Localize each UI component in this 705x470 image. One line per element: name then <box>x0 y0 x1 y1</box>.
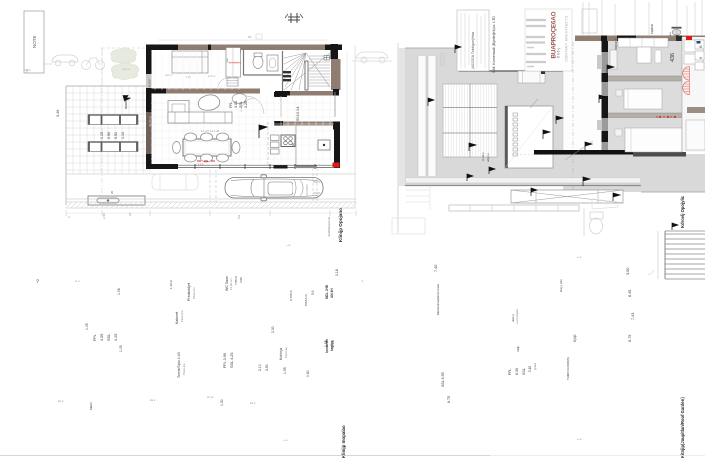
svg-text:PISTA m: PISTA m <box>304 294 308 306</box>
svg-text:xxxx m: xxxx m <box>208 75 215 78</box>
svg-text:~ u: ~ u <box>283 438 288 442</box>
svg-text:THIRD FLOOR(S): THIRD FLOOR(S) <box>566 357 570 380</box>
svg-text:24: 24 <box>128 212 132 216</box>
svg-text:grava: grava <box>533 363 537 370</box>
svg-text:3.9: 3.9 <box>311 290 315 295</box>
svg-text:7.05 D: 7.05 D <box>234 275 238 285</box>
svg-text:6.45: 6.45 <box>628 290 632 297</box>
svg-text:40.06 m: 40.06 m <box>148 116 152 127</box>
svg-text:xxxx m: xxxx m <box>165 74 172 77</box>
svg-text:3.90: 3.90 <box>265 364 269 371</box>
svg-text:KUB.M: KUB.M <box>149 79 152 87</box>
svg-text:xx x: xx x <box>150 398 156 402</box>
svg-text:(ACGGA Tololigunjhfaa: (ACGGA Tololigunjhfaa <box>471 32 475 69</box>
svg-text:1.05: 1.05 <box>85 323 89 330</box>
svg-text:3.05: 3.05 <box>234 101 238 108</box>
svg-text:W: W <box>110 191 114 194</box>
svg-text:Pisos are: Pisos are <box>180 310 184 322</box>
svg-text:4.25: 4.25 <box>114 334 118 341</box>
svg-text:w u: w u <box>75 279 80 283</box>
svg-text:B: B <box>698 45 703 48</box>
svg-text:Predsobljet: Predsobljet <box>187 283 191 301</box>
svg-text:9.765 m: 9.765 m <box>289 290 293 301</box>
svg-text:S.M. Komeraudi (Bijedeljif4(co: S.M. Komeraudi (Bijedeljif4(co. LTD <box>492 16 496 73</box>
svg-text:2: 2 <box>67 216 71 218</box>
svg-text:436: 436 <box>670 53 676 62</box>
svg-text:kapica: kapica <box>650 24 654 34</box>
svg-text:Pisos av: Pisos av <box>284 347 288 358</box>
svg-text:7.43: 7.43 <box>631 313 635 320</box>
svg-text:1.10 m: 1.10 m <box>169 279 173 289</box>
svg-text:Pisos am: Pisos am <box>192 287 196 299</box>
svg-text:SSL 4.25: SSL 4.25 <box>230 353 234 368</box>
svg-text:5.0: 5.0 <box>237 214 241 219</box>
svg-text:a: a <box>360 280 364 282</box>
svg-text:Pisos are: Pisos are <box>182 363 186 375</box>
svg-text:PA: PA <box>248 35 252 39</box>
svg-text:+ u: + u <box>577 437 582 441</box>
svg-text:FFL: FFL <box>508 369 512 375</box>
svg-text:2.18: 2.18 <box>335 269 339 276</box>
svg-text:Jodinfsknjocvlo: Jodinfsknjocvlo <box>327 216 331 237</box>
svg-text:5913.54: 5913.54 <box>295 106 300 121</box>
svg-text:miliji: miliji <box>516 346 520 352</box>
svg-text:1.1 2.0 1.6 1.28: 1.1 2.0 1.6 1.28 <box>201 129 220 133</box>
svg-text:HYUNDAI: HYUNDAI <box>305 184 309 196</box>
svg-text:NOTE: NOTE <box>32 35 37 48</box>
svg-text:xx x: xx x <box>250 401 256 405</box>
svg-text:SSL: SSL <box>522 368 526 375</box>
svg-text:6.30: 6.30 <box>515 368 519 375</box>
svg-text:2.30: 2.30 <box>271 326 275 333</box>
svg-text:Klinijp Opojano: Klinijp Opojano <box>338 208 343 242</box>
svg-text:0.90: 0.90 <box>107 132 111 139</box>
svg-text:6.75: 6.75 <box>447 396 451 403</box>
svg-text:1.30: 1.30 <box>220 399 224 406</box>
svg-text:xxxx m: xxxx m <box>122 68 130 71</box>
svg-text:0.91: 0.91 <box>114 132 118 139</box>
svg-text:s pro blaze: s pro blaze <box>515 309 519 324</box>
svg-text:1.13: 1.13 <box>121 132 125 139</box>
svg-text:7.40: 7.40 <box>434 265 438 272</box>
svg-text:6 ö 6 ç: 6 ö 6 ç <box>557 48 561 58</box>
svg-text:Kabinet: Kabinet <box>175 312 179 324</box>
svg-text:Mezzanine/plener trase: Mezzanine/plener trase <box>436 283 440 315</box>
svg-text:1.05: 1.05 <box>186 76 191 79</box>
svg-text:1.06: 1.06 <box>117 288 121 295</box>
svg-text:60: 60 <box>291 142 295 146</box>
svg-text:kraj y pilo: kraj y pilo <box>559 279 563 292</box>
svg-text:FFL: FFL <box>93 334 97 341</box>
svg-text:2.10: 2.10 <box>258 364 262 371</box>
svg-text:adjenu: adjenu <box>486 153 490 162</box>
svg-text:Kitnjip(Jaupitlan/Roof Garden): Kitnjip(Jaupitlan/Roof Garden) <box>680 397 685 458</box>
svg-text:0.60: 0.60 <box>306 370 310 377</box>
svg-text:SSL 6.55: SSL 6.55 <box>441 372 445 387</box>
svg-text:FL pis an: FL pis an <box>229 278 233 290</box>
svg-text:AN 4H: AN 4H <box>330 288 334 298</box>
svg-text:Kuhinja: Kuhinja <box>279 348 283 360</box>
svg-text:6.75: 6.75 <box>628 335 632 342</box>
svg-text:1.15: 1.15 <box>100 132 104 139</box>
svg-text:5.10: 5.10 <box>528 366 532 372</box>
svg-text:+ u: + u <box>577 255 582 259</box>
svg-text:FFL 3.90: FFL 3.90 <box>223 353 227 368</box>
svg-text:1.55: 1.55 <box>283 367 287 374</box>
svg-text:Tomis/Spio 4.40: Tomis/Spio 4.40 <box>177 352 181 378</box>
svg-text:komande: komande <box>325 339 329 353</box>
svg-text:Klinijp Inopalao: Klinijp Inopalao <box>341 425 346 458</box>
svg-text:CONTANT ARCHITECTS: CONTANT ARCHITECTS <box>565 15 569 61</box>
svg-text:SSL: SSL <box>239 101 243 108</box>
svg-text:SSL: SSL <box>107 334 111 341</box>
svg-text:3.00: 3.00 <box>626 268 630 275</box>
svg-text:~ u: ~ u <box>286 243 291 247</box>
svg-text:4.05: 4.05 <box>100 334 104 341</box>
svg-text:Kdrovlj Opojylic: Kdrovlj Opojylic <box>680 195 685 228</box>
svg-text:Gradnj: Gradnj <box>481 152 485 161</box>
svg-text:1.05: 1.05 <box>119 345 123 352</box>
svg-text:3.46: 3.46 <box>56 110 60 117</box>
svg-text:kapilar: kapilar <box>330 340 334 351</box>
svg-text:+2: +2 <box>36 279 40 283</box>
svg-text:6(4)0: 6(4)0 <box>573 334 577 342</box>
svg-text:FFL: FFL <box>229 102 233 108</box>
svg-text:MEDI: MEDI <box>89 402 93 410</box>
svg-text:xx x: xx x <box>58 399 64 403</box>
svg-text:MDL JHB: MDL JHB <box>325 284 329 299</box>
svg-text:A01: A01 <box>669 31 672 36</box>
svg-text:xx xx: xx xx <box>207 395 214 399</box>
svg-text:2.60: 2.60 <box>102 213 106 219</box>
svg-text:3.25: 3.25 <box>244 101 248 108</box>
svg-text:3.00: 3.00 <box>239 277 243 283</box>
